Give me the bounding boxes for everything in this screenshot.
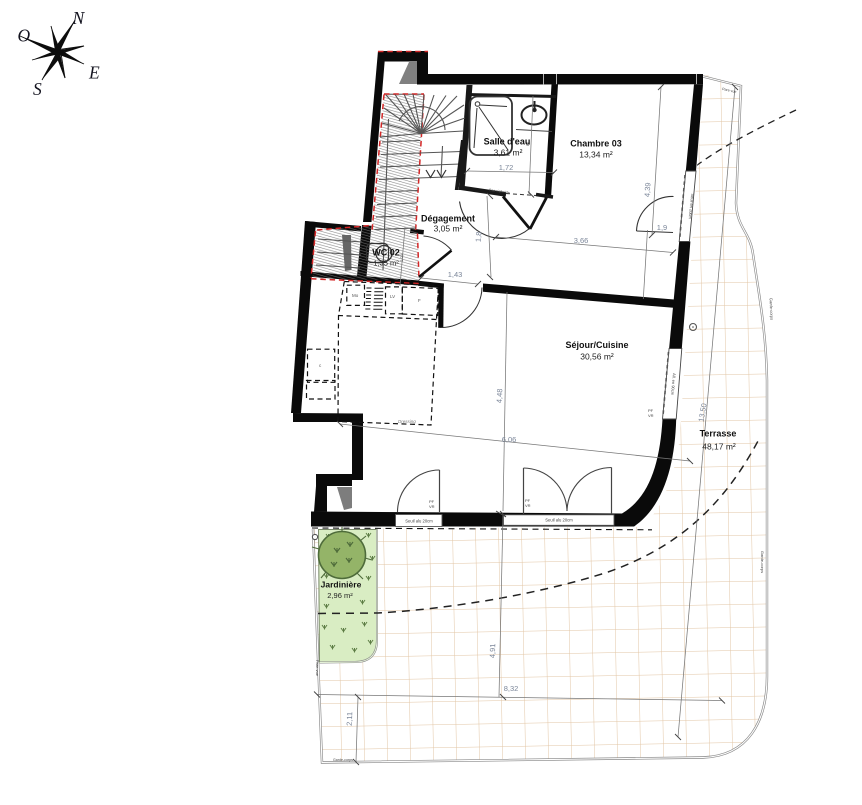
- svg-text:1,03: 1,03: [400, 254, 404, 262]
- svg-text:2,11: 2,11: [345, 712, 354, 726]
- svg-text:13,34 m²: 13,34 m²: [579, 150, 613, 160]
- svg-text:Dressing: Dressing: [398, 419, 416, 424]
- svg-text:Mo: Mo: [352, 293, 359, 298]
- svg-text:1,9: 1,9: [657, 223, 667, 232]
- svg-text:VR: VR: [648, 413, 654, 418]
- svg-text:3,61 m²: 3,61 m²: [494, 148, 523, 158]
- svg-text:2,96 m²: 2,96 m²: [327, 591, 353, 600]
- svg-text:Garde-corps: Garde-corps: [760, 551, 765, 573]
- svg-text:30,56 m²: 30,56 m²: [580, 352, 614, 362]
- svg-text:Jardinière: Jardinière: [321, 580, 362, 590]
- svg-text:Garde-corps: Garde-corps: [769, 298, 775, 320]
- svg-text:4,91: 4,91: [488, 643, 498, 658]
- svg-text:Salle d'eau: Salle d'eau: [484, 137, 531, 147]
- svg-text:Dégagement: Dégagement: [421, 214, 475, 224]
- svg-text:Seuil alu 20cm: Seuil alu 20cm: [545, 518, 573, 523]
- svg-text:Seuil alu 20cm: Seuil alu 20cm: [405, 519, 433, 524]
- svg-text:1,8: 1,8: [474, 231, 484, 242]
- svg-text:1,43: 1,43: [448, 270, 463, 279]
- svg-text:4,39: 4,39: [643, 182, 653, 197]
- svg-text:Pare-vue: Pare-vue: [315, 660, 320, 677]
- svg-text:WC 02: WC 02: [372, 248, 400, 258]
- svg-text:VR: VR: [429, 504, 435, 509]
- svg-text:1,72: 1,72: [499, 163, 514, 172]
- svg-text:Terrasse: Terrasse: [700, 429, 737, 439]
- svg-text:S: S: [33, 79, 42, 99]
- svg-text:N: N: [72, 8, 86, 28]
- svg-text:1,35 m²: 1,35 m²: [373, 259, 399, 268]
- svg-text:LV: LV: [390, 294, 395, 299]
- svg-text:VR: VR: [525, 503, 531, 508]
- svg-text:8,32: 8,32: [504, 684, 519, 693]
- svg-text:F: F: [418, 298, 421, 303]
- svg-text:E: E: [88, 63, 100, 83]
- svg-text:48,17 m²: 48,17 m²: [702, 442, 736, 452]
- svg-text:3,66: 3,66: [574, 236, 589, 245]
- svg-text:Garde-corps: Garde-corps: [333, 758, 353, 762]
- svg-text:3,05 m²: 3,05 m²: [434, 224, 463, 234]
- svg-text:Chambre 03: Chambre 03: [570, 139, 622, 149]
- svg-text:O: O: [18, 26, 31, 46]
- svg-text:4,48: 4,48: [495, 388, 505, 403]
- svg-text:6,06: 6,06: [502, 435, 517, 444]
- svg-text:Séjour/Cuisine: Séjour/Cuisine: [565, 340, 628, 350]
